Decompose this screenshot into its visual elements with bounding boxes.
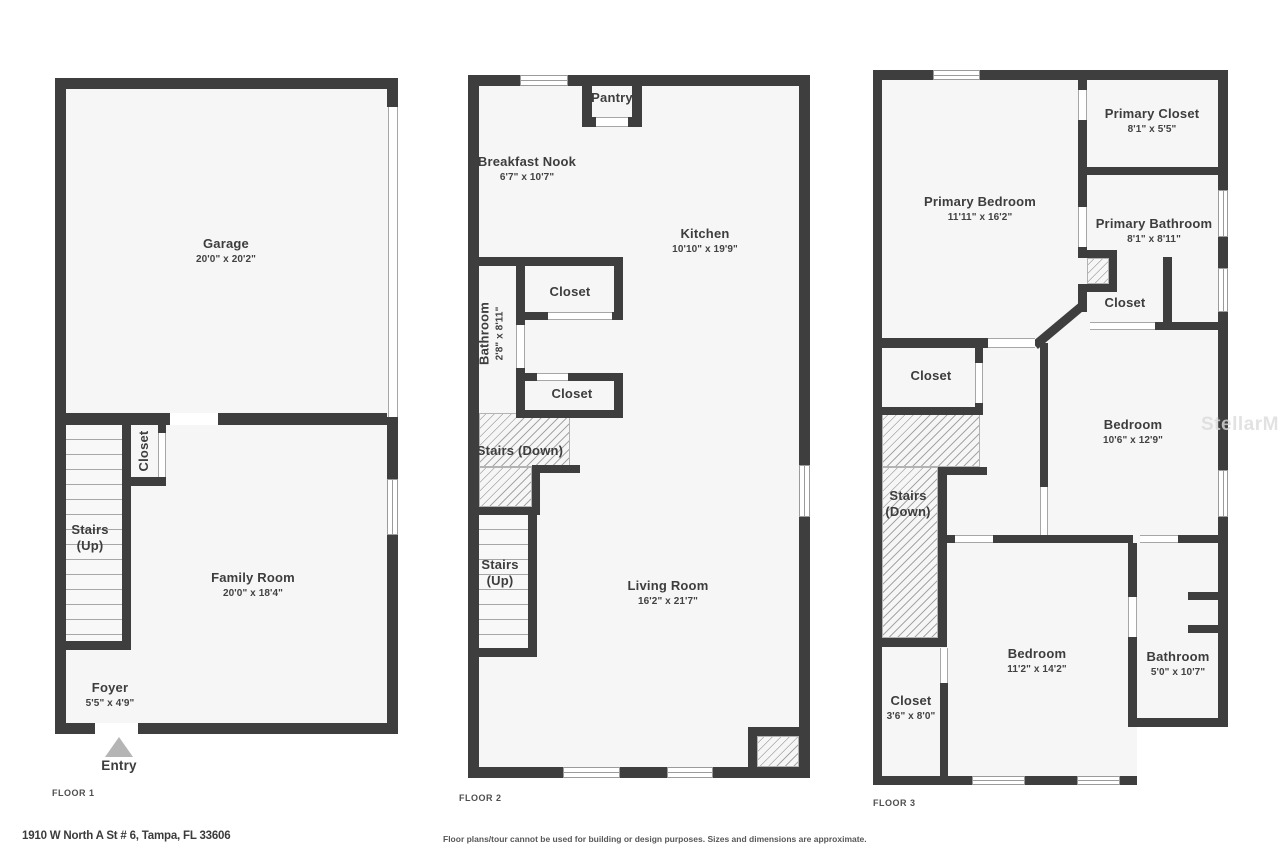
room-label-bedroom2: Bedroom 10'6" x 12'9" [1063,417,1203,448]
door-opening [1128,597,1137,637]
wall [1128,718,1228,727]
room-name: Breakfast Nook [457,154,597,170]
wall [387,417,398,479]
window [520,75,568,86]
wall [387,535,398,734]
room-name: Bathroom [1136,649,1220,665]
room-sub: (Up) [60,538,120,554]
room-label-primary-closet: Primary Closet 8'1" x 5'5" [1092,106,1212,137]
room-name: Closet [532,386,612,402]
room-label-stairs-up: Stairs (Up) [470,557,530,589]
wall [799,517,810,778]
room-name: Primary Bathroom [1080,216,1228,232]
wall [975,348,983,363]
wall [516,312,548,320]
wall [218,413,387,425]
shower-hatch [1087,258,1109,284]
wall [1087,167,1228,175]
wall [1155,322,1228,330]
wall [614,257,623,320]
door-opening [955,535,993,543]
room-label-closet-upper: Closet [530,284,610,300]
window [799,465,810,517]
wall [993,535,1133,543]
property-address: 1910 W North A St # 6, Tampa, FL 33606 [22,830,230,842]
window [972,776,1025,785]
window [1077,776,1120,785]
wall [468,257,623,266]
disclaimer-text: Floor plans/tour cannot be used for buil… [443,834,867,844]
wall [468,648,537,657]
room-label-closet-hall: Closet [891,368,971,384]
wall [620,767,667,778]
room-label-closet-bottom: Closet 3'6" x 8'0" [873,693,949,724]
room-dims: 11'2" x 14'2" [967,662,1107,677]
room-label-primary-bathroom: Primary Bathroom 8'1" x 8'11" [1080,216,1228,247]
door-opening [988,338,1035,348]
wall [1188,592,1218,600]
room-label-bathroom: Bathroom 5'0" x 10'7" [1136,649,1220,680]
room-name: Primary Closet [1092,106,1212,122]
room-dims: 2'8" x 8'11" [493,288,508,380]
wall [873,638,947,647]
wall [873,70,933,80]
door-opening [1040,487,1048,535]
room-name: Closet [136,424,152,478]
room-dims: 5'5" x 4'9" [70,696,150,711]
wall [1218,517,1228,727]
entry-arrow-icon [105,737,133,757]
room-name: Pantry [572,90,652,106]
garage-door [388,107,398,417]
window [933,70,980,80]
room-dims: 5'0" x 10'7" [1136,665,1220,680]
entry-text: Entry [77,758,161,774]
wall [582,117,596,127]
wall [1188,625,1218,633]
door-opening [548,312,612,320]
room-name: Primary Bedroom [910,194,1050,210]
wall [122,425,131,641]
room-sub: (Up) [470,573,530,589]
room-label-primary-bedroom: Primary Bedroom 11'11" x 16'2" [910,194,1050,225]
room-name: Stairs (Down) [460,443,580,459]
wall [1163,257,1172,322]
wall [713,767,810,778]
room-dims: 6'7" x 10'7" [457,170,597,185]
wall [122,477,166,486]
wall [568,75,810,86]
wall [66,413,170,425]
wall [468,767,563,778]
window [1218,268,1228,312]
room-name: Bedroom [1063,417,1203,433]
room-label-pantry: Pantry [572,90,652,106]
room-label-closet: Closet [136,424,152,478]
room-label-kitchen: Kitchen 10'10" x 19'9" [635,226,775,257]
door-opening [170,413,218,425]
floorplan-canvas: Garage 20'0" x 20'2" Stairs (Up) Closet … [0,0,1280,854]
window [563,767,620,778]
stairs-down-hatch [882,413,980,467]
room-label-closet-lower: Closet [532,386,612,402]
room-name: Stairs [470,557,530,573]
door-opening [1090,322,1155,330]
room-label-family-room: Family Room 20'0" x 18'4" [183,570,323,601]
room-label-bathroom: Bathroom 2'8" x 8'11" [477,288,508,380]
wall [873,338,988,348]
wall [873,776,972,785]
door-opening [516,325,525,368]
wall [468,507,540,515]
floor1-tag: FLOOR 1 [52,788,95,798]
room-name: Closet [530,284,610,300]
wall [1078,70,1087,90]
wall [1178,535,1218,543]
room-label-breakfast-nook: Breakfast Nook 6'7" x 10'7" [457,154,597,185]
wall [55,78,66,734]
stellar-mls-watermark: StellarMLS [1201,414,1280,436]
room-name: Bathroom [477,288,493,380]
wall [387,78,398,107]
wall [1218,312,1228,470]
room-dims: 3'6" x 8'0" [873,709,949,724]
wall [158,425,166,433]
room-label-closet-suite: Closet [1087,295,1163,311]
wall [55,78,398,89]
room-name: Stairs [60,522,120,538]
room-label-foyer: Foyer 5'5" x 4'9" [70,680,150,711]
door-opening [158,433,166,477]
room-name: Family Room [183,570,323,586]
stairs-down-hatch [479,467,532,507]
room-label-stairs-down: Stairs (Down) [460,443,580,459]
wall [66,641,131,650]
room-name: Living Room [598,578,738,594]
wall [873,70,882,785]
wall [980,70,1228,80]
wall [516,410,623,418]
wall [1120,776,1137,785]
wall [1078,120,1087,207]
room-name: Closet [891,368,971,384]
wall [138,723,398,734]
room-name: Closet [873,693,949,709]
wall [799,75,810,465]
room-label-living-room: Living Room 16'2" x 21'7" [598,578,738,609]
wall [873,407,983,415]
wall [1040,343,1048,487]
wall [516,373,537,381]
room-dims: 20'0" x 20'2" [156,252,296,267]
floor3-tag: FLOOR 3 [873,798,916,808]
wall [55,723,95,734]
room-name: Closet [1087,295,1163,311]
door-opening [940,648,948,683]
door-opening [537,373,568,381]
window [1218,470,1228,517]
room-label-bedroom3: Bedroom 11'2" x 14'2" [967,646,1107,677]
door-opening [1078,90,1087,120]
window [667,767,713,778]
room-name: Foyer [70,680,150,696]
floor2-tag: FLOOR 2 [459,793,502,803]
wall [945,535,955,543]
room-name: Garage [156,236,296,252]
wall [1128,543,1137,597]
wall [1025,776,1077,785]
room-dims: 8'1" x 8'11" [1080,232,1228,247]
wall [748,727,803,736]
room-label-stairs-up: Stairs (Up) [60,522,120,554]
room-label-garage: Garage 20'0" x 20'2" [156,236,296,267]
room-dims: 10'10" x 19'9" [635,242,775,257]
room-label-stairs-down: Stairs (Down) [868,488,948,520]
door-opening [1140,535,1178,543]
utility-hatch [757,736,799,767]
window [387,479,398,535]
room-name: Stairs [868,488,948,504]
room-name: Bedroom [967,646,1107,662]
room-dims: 20'0" x 18'4" [183,586,323,601]
wall [628,117,642,127]
room-name: Kitchen [635,226,775,242]
room-dims: 11'11" x 16'2" [910,210,1050,225]
room-dims: 8'1" x 5'5" [1092,122,1212,137]
room-dims: 16'2" x 21'7" [598,594,738,609]
door-opening [596,117,628,127]
room-sub: (Down) [868,504,948,520]
wall [1078,284,1117,292]
entry-opening [95,723,138,734]
door-opening [975,363,983,403]
room-dims: 10'6" x 12'9" [1063,433,1203,448]
entry-label: Entry [77,758,161,774]
